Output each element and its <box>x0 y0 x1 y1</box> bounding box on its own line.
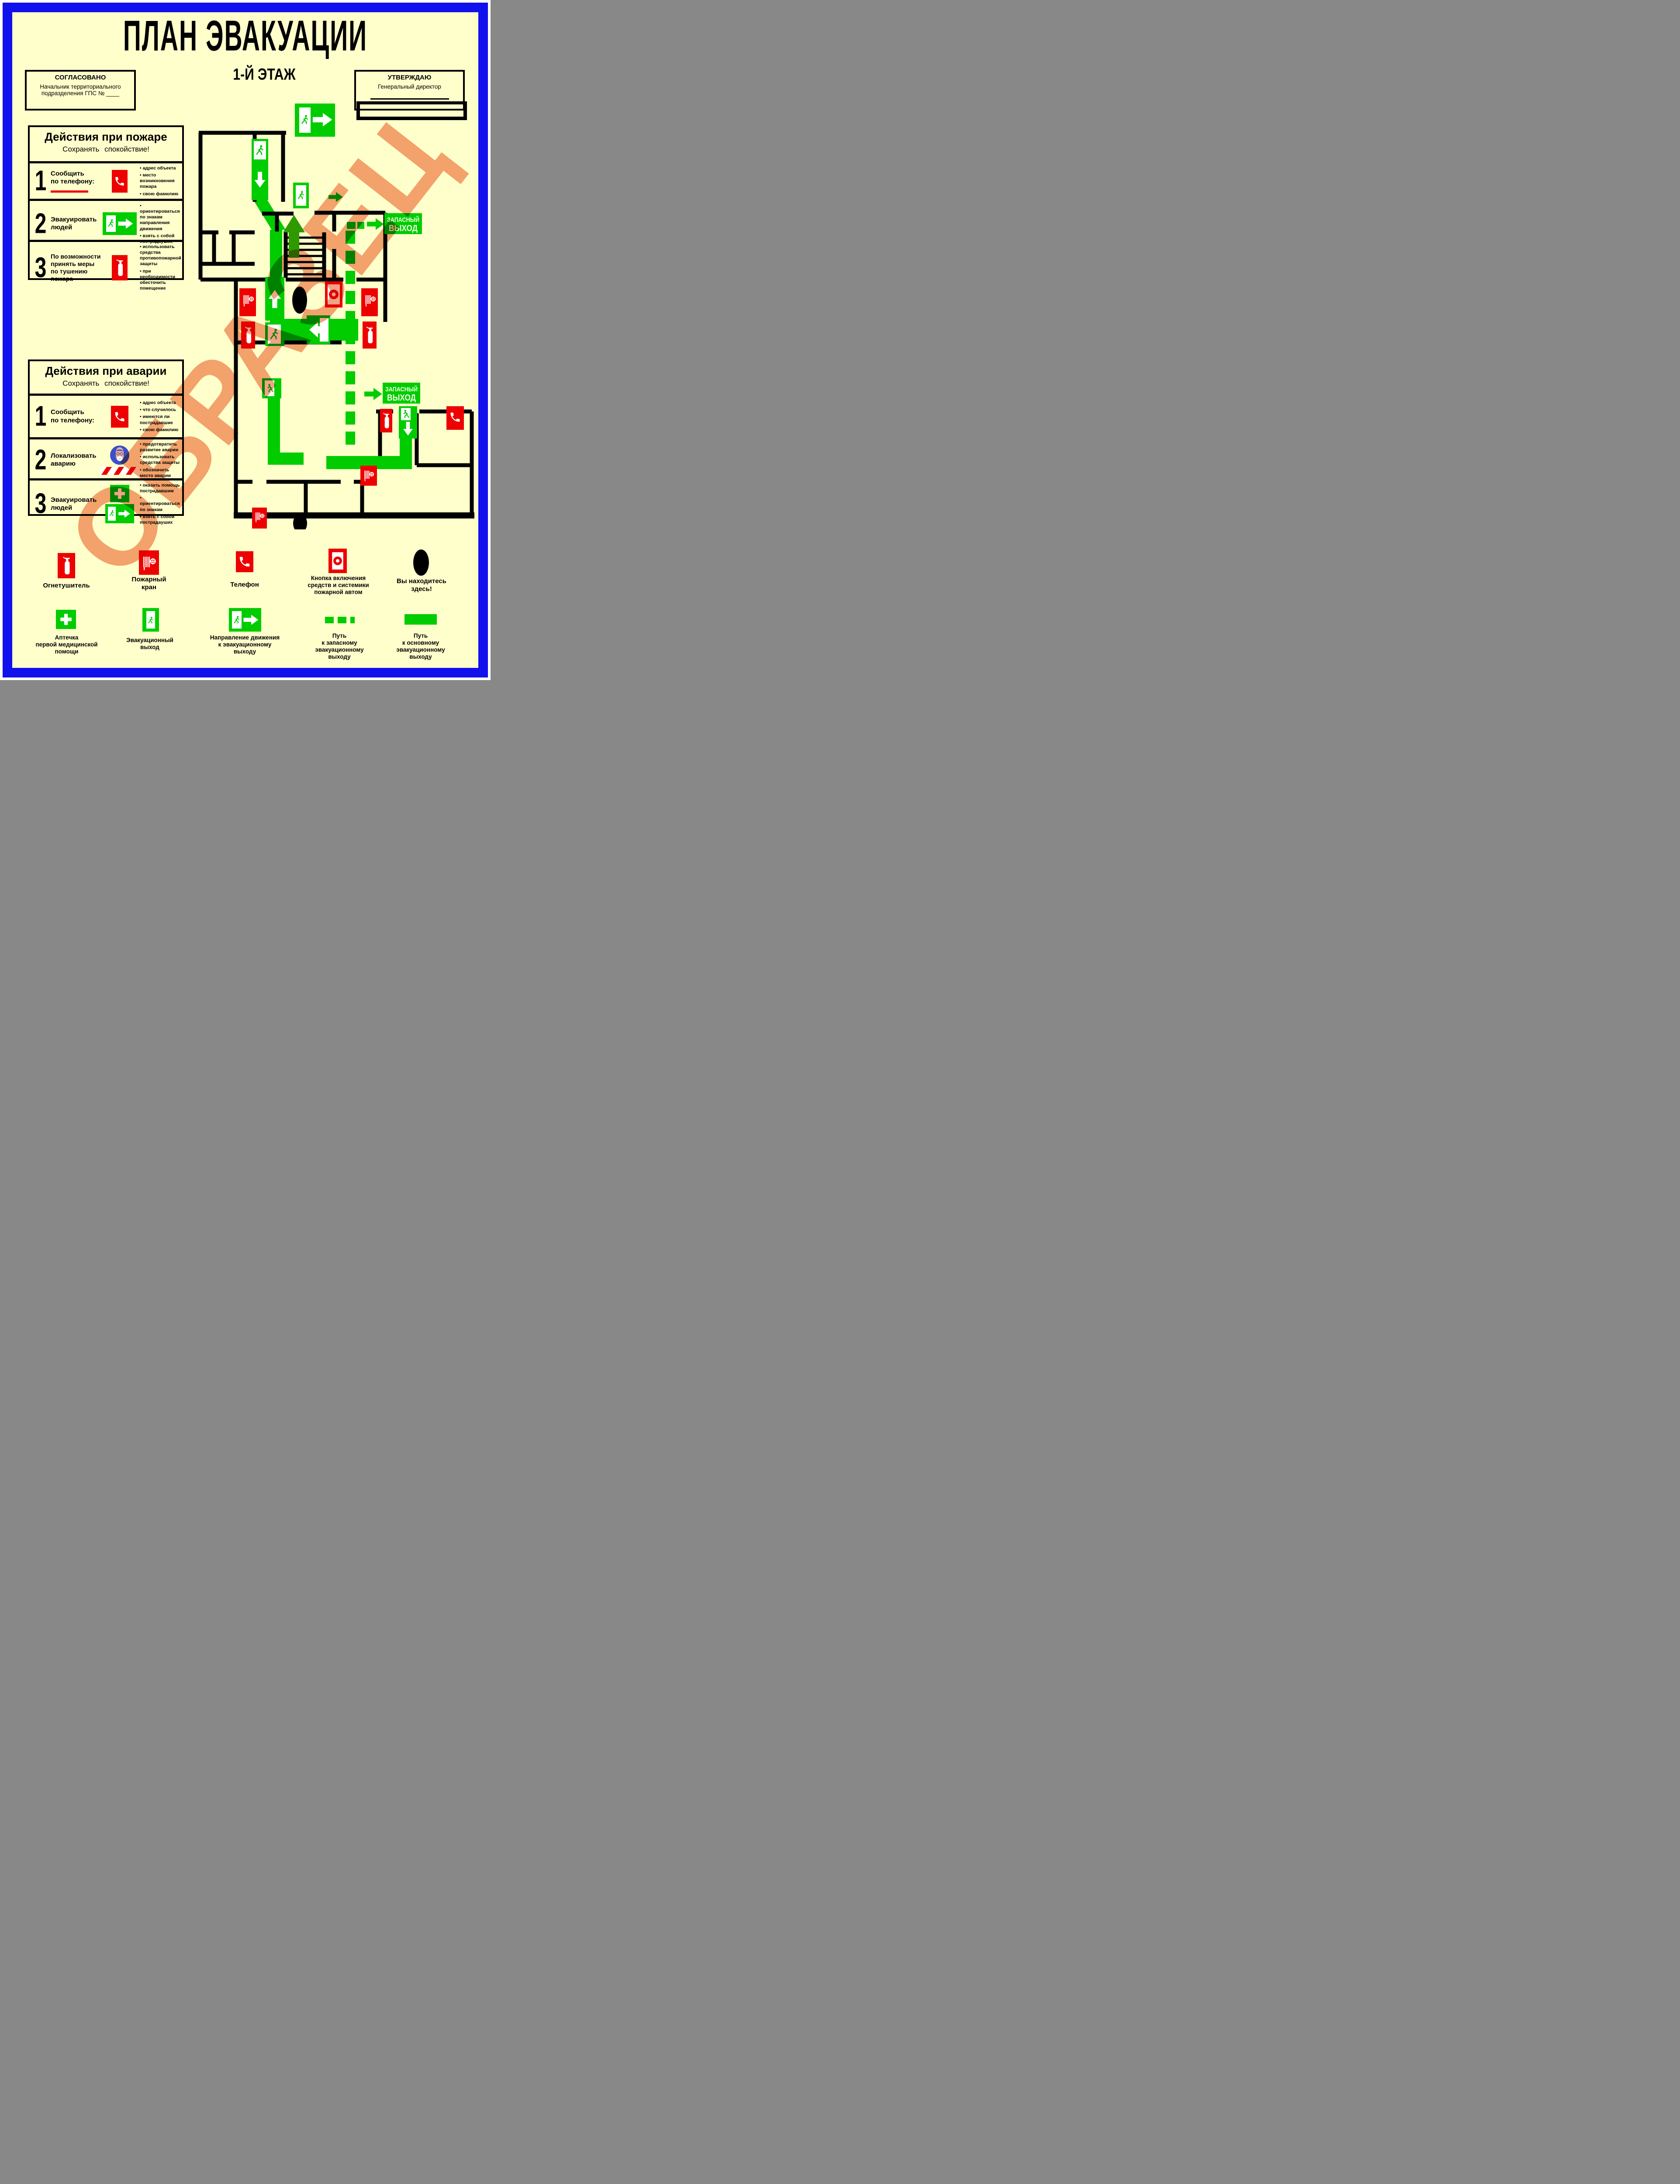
extinguisher-icon <box>363 321 377 349</box>
step-bullets: адрес объекта место возникновения пожара… <box>138 164 180 198</box>
poster-title: ПЛАН ЭВАКУАЦИИ <box>0 11 491 61</box>
main-route-icon <box>404 614 437 625</box>
direction-to-exit-icon <box>229 608 261 632</box>
fire-panel-header: Действия при пожаре Сохранять спокойстви… <box>30 127 182 161</box>
fire-actions-panel: Действия при пожаре Сохранять спокойстви… <box>28 125 184 280</box>
legend-label: Путь к основному эвакуационному выходу <box>384 632 458 660</box>
legend-label: Направление движения к эвакуационному вы… <box>200 634 290 655</box>
first-aid-icon <box>56 610 76 629</box>
legend-label: Вы находитесь здесь! <box>384 577 459 593</box>
reserve-route-icon <box>325 617 355 623</box>
fire-panel-subtitle: Сохранять спокойствие! <box>30 145 182 154</box>
agreed-line: подразделения ГПС № ____ <box>28 90 132 97</box>
phone-icon <box>236 551 253 572</box>
step-number: 2 <box>31 207 51 240</box>
agreed-title: СОГЛАСОВАНО <box>28 74 132 81</box>
extinguisher-icon <box>112 255 128 280</box>
legend-label: Аптечка первой медицинской помощи <box>24 634 109 655</box>
fire-step-2: 2 Эвакуировать людей ориентироваться по … <box>30 199 182 240</box>
evacuation-plan-poster: ПЛАН ЭВАКУАЦИИ 1-Й ЭТАЖ СОГЛАСОВАНО Нача… <box>0 0 491 680</box>
legend-label: Кнопка включения средств и системики пож… <box>294 575 383 596</box>
agreed-line: Начальник территориального <box>28 83 132 90</box>
fire-alarm-button-icon <box>328 549 347 573</box>
extinguisher-icon <box>380 409 392 432</box>
extinguisher-icon <box>58 553 75 578</box>
fire-hose-icon <box>252 508 267 529</box>
phone-icon <box>112 170 128 193</box>
legend-label: Эвакуационный выход <box>113 637 187 651</box>
approved-line: Генеральный директор <box>358 83 461 90</box>
exit-sign-down-right <box>399 406 417 439</box>
signature-line <box>370 93 449 100</box>
svg-text:ЗАПАСНЫЙ: ЗАПАСНЫЙ <box>385 385 418 393</box>
svg-text:ВЫХОД: ВЫХОД <box>387 393 416 403</box>
legend-label: Огнетушитель <box>27 582 106 590</box>
evacuation-exit-icon <box>142 608 159 632</box>
fire-step-3: 3 По возможности принять меры по тушению… <box>30 240 182 280</box>
step-number: 1 <box>31 400 51 432</box>
reserve-exit-sign-2: ЗАПАСНЫЙ ВЫХОД <box>364 383 420 404</box>
you-are-here-icon <box>412 549 430 577</box>
step-bullets: использовать средства противопожарной за… <box>138 243 181 293</box>
fire-hose-icon <box>360 466 377 486</box>
step-label: Сообщить по телефону: <box>51 408 101 425</box>
step-label: По возможности принять меры по тушению п… <box>51 253 101 283</box>
phone-icon <box>446 406 464 430</box>
exit-sign-top <box>295 104 335 137</box>
exit-sign-icon <box>103 212 137 235</box>
legend-label: Телефон <box>207 581 282 589</box>
step-label: Эвакуировать людей <box>51 216 101 232</box>
step-number: 1 <box>31 165 51 197</box>
step-number: 3 <box>31 252 51 284</box>
agreed-box: СОГЛАСОВАНО Начальник территориального п… <box>25 70 136 111</box>
approved-title: УТВЕРЖДАЮ <box>358 74 461 81</box>
step-bullets: ориентироваться по знакам направления дв… <box>138 202 180 246</box>
fire-panel-title: Действия при пожаре <box>30 130 182 144</box>
fire-step-1: 1 Сообщить по телефону: адрес объекта ме… <box>30 161 182 199</box>
step-label: Сообщить по телефону: <box>51 170 101 193</box>
floor-label: 1-Й ЭТАЖ <box>188 66 341 84</box>
exit-sign-down <box>252 139 268 200</box>
red-underline <box>51 190 88 193</box>
step-number: 2 <box>31 444 51 476</box>
legend-label: Путь к запасному эвакуационному выходу <box>302 632 377 660</box>
